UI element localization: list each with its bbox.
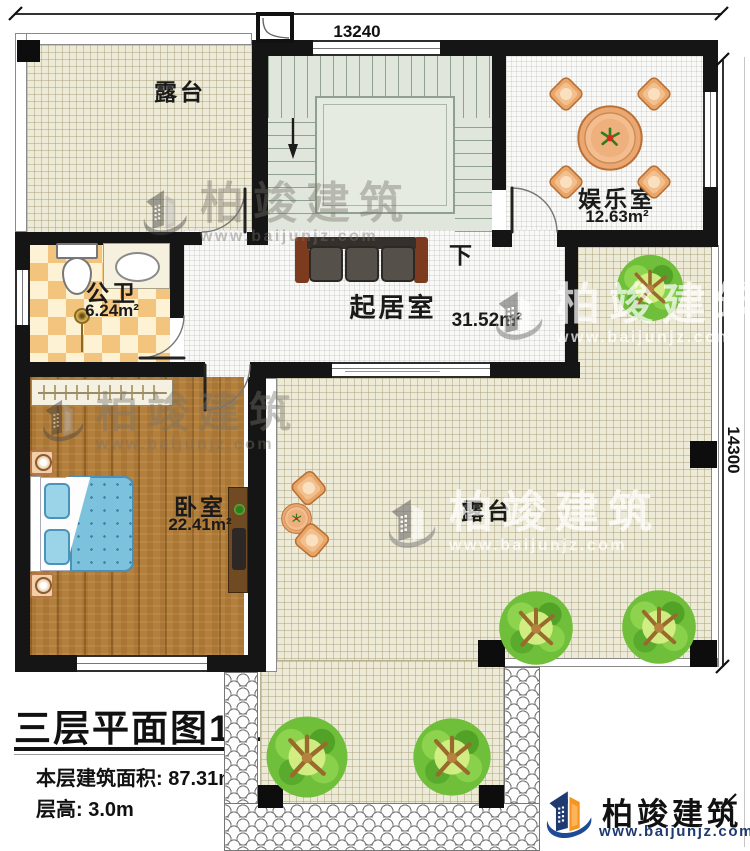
terrace-top-floor [27,45,252,232]
column-terrace-top-corner [17,40,40,62]
desk-plant-icon [234,504,245,515]
area-living: 31.52m² [452,310,523,332]
column-south-left [478,640,505,667]
sofa-cushion [309,246,343,282]
lamp-icon [35,577,52,594]
wall-entertainment-south-a [492,230,512,247]
dimension-right-value: 14300 [723,426,743,473]
stair-flight-right [455,118,492,232]
nightstand-top [30,450,54,475]
wall-bedroom-north-a [15,362,205,377]
sliding-door-living-south [332,362,490,378]
bed-pillow [44,483,70,519]
area-bedroom: 22.41m² [168,515,231,535]
column-wing-right [479,785,504,808]
window-bedroom-south [77,655,207,672]
column-wing-left [258,785,283,808]
wardrobe [31,379,173,406]
sofa [295,237,428,283]
dimension-line-top [15,13,722,15]
wall-bathroom-west-a [15,232,30,270]
label-terrace-main: 露台 [461,492,513,526]
column-east-mid [690,441,717,468]
sofa-cushion [345,246,379,282]
wall-bathroom-east [170,232,184,318]
brand-site: www.baijunjz.com [599,823,750,840]
area-entertainment: 12.63m² [585,207,648,227]
sofa-arm-right [414,237,428,283]
window-bathroom-west [15,270,30,325]
dimension-top-value: 13240 [333,22,380,42]
wall-bedroom-west [15,362,30,672]
roof-tiles-south [224,803,540,851]
floor-height-line: 层高: 3.0m [36,793,134,822]
computer-monitor [232,528,246,570]
wall-stair-entertainment [492,40,506,190]
window-north-stair [313,40,440,56]
flue-box [256,12,294,43]
wall-terrace-top-south-b [247,232,268,245]
terrace-top-railing-west [15,33,27,232]
wall-entertainment-south-b [557,230,718,247]
plan-title-text: 三层平面图 [14,708,209,749]
wall-bedroom-north-b [250,362,332,378]
label-stair-down: 下 [449,236,475,270]
wall-bedroom-south-a [15,655,77,672]
terrace-right-upper [578,247,711,378]
dimension-line-right [722,60,724,667]
label-terrace-top: 露台 [154,73,206,107]
area-bathroom: 6.24m² [85,301,139,321]
window-entertainment-east [703,92,718,187]
stair-flight-left [268,118,315,214]
wall-bathroom-west-b [15,325,30,362]
bed-pillow [44,529,70,565]
nightstand-bottom [30,573,54,598]
floor-area-line: 本层建筑面积: 87.31m² [36,762,243,791]
wall-east-a [703,40,718,92]
brand-logo-icon [543,783,597,845]
terrace-railing-south [504,658,718,667]
floor-drain-stem [81,324,83,352]
terrace-top-railing-north [15,33,252,45]
terrace-south-wing [260,660,504,805]
wall-bedroom-south-b [207,655,266,672]
column-south-right [690,640,717,667]
stair-landing [315,96,455,214]
label-living: 起居室 [349,288,436,325]
desk [228,487,248,593]
floor-plan-page: 13240 14300 露台 娱乐室 12.63m² 公卫 6.24m² 起居室… [0,0,750,851]
bed-sheet-fold [66,477,98,571]
lamp-icon [35,454,52,471]
wall-bedroom-east [248,377,266,672]
extension-line-right [744,57,745,847]
bed [30,476,134,572]
title-underline-thin [14,754,227,755]
wall-living-east [565,238,578,378]
wall-stair-west [252,40,268,232]
sofa-cushion [381,246,415,282]
title-underline [14,747,227,751]
